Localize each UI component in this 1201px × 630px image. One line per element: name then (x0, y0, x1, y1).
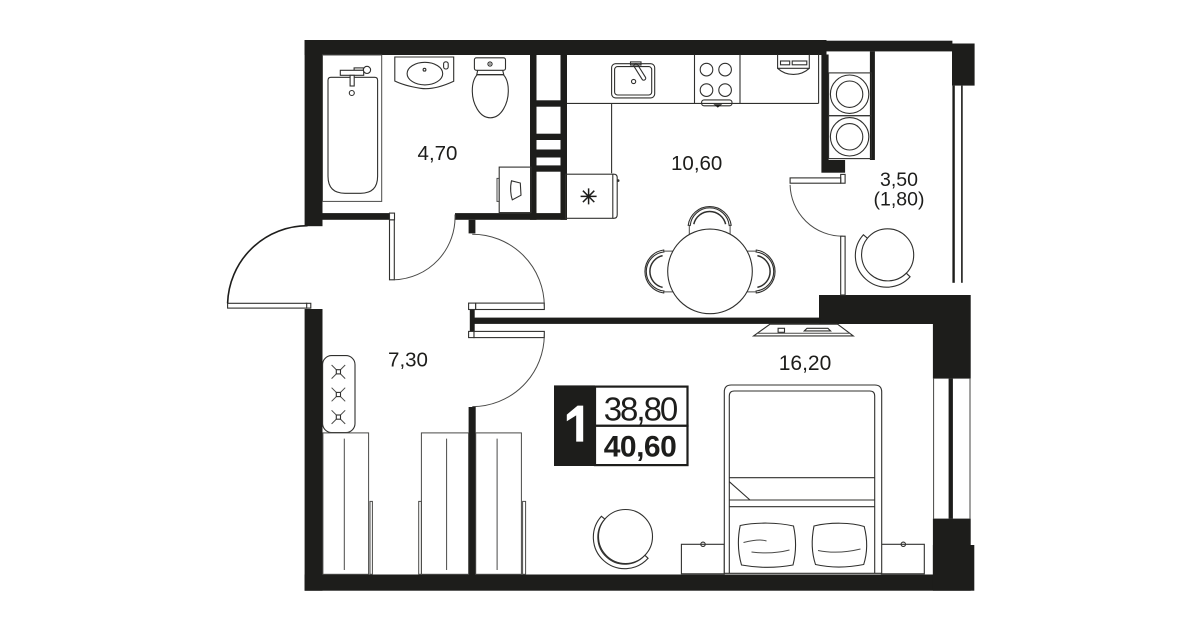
svg-text:16,20: 16,20 (779, 352, 832, 375)
svg-text:4,70: 4,70 (418, 142, 458, 165)
svg-text:(1,80): (1,80) (874, 188, 925, 210)
svg-text:38,80: 38,80 (604, 390, 678, 427)
svg-text:10,60: 10,60 (671, 152, 722, 175)
svg-text:7,30: 7,30 (388, 349, 428, 372)
svg-text:40,60: 40,60 (604, 431, 677, 464)
